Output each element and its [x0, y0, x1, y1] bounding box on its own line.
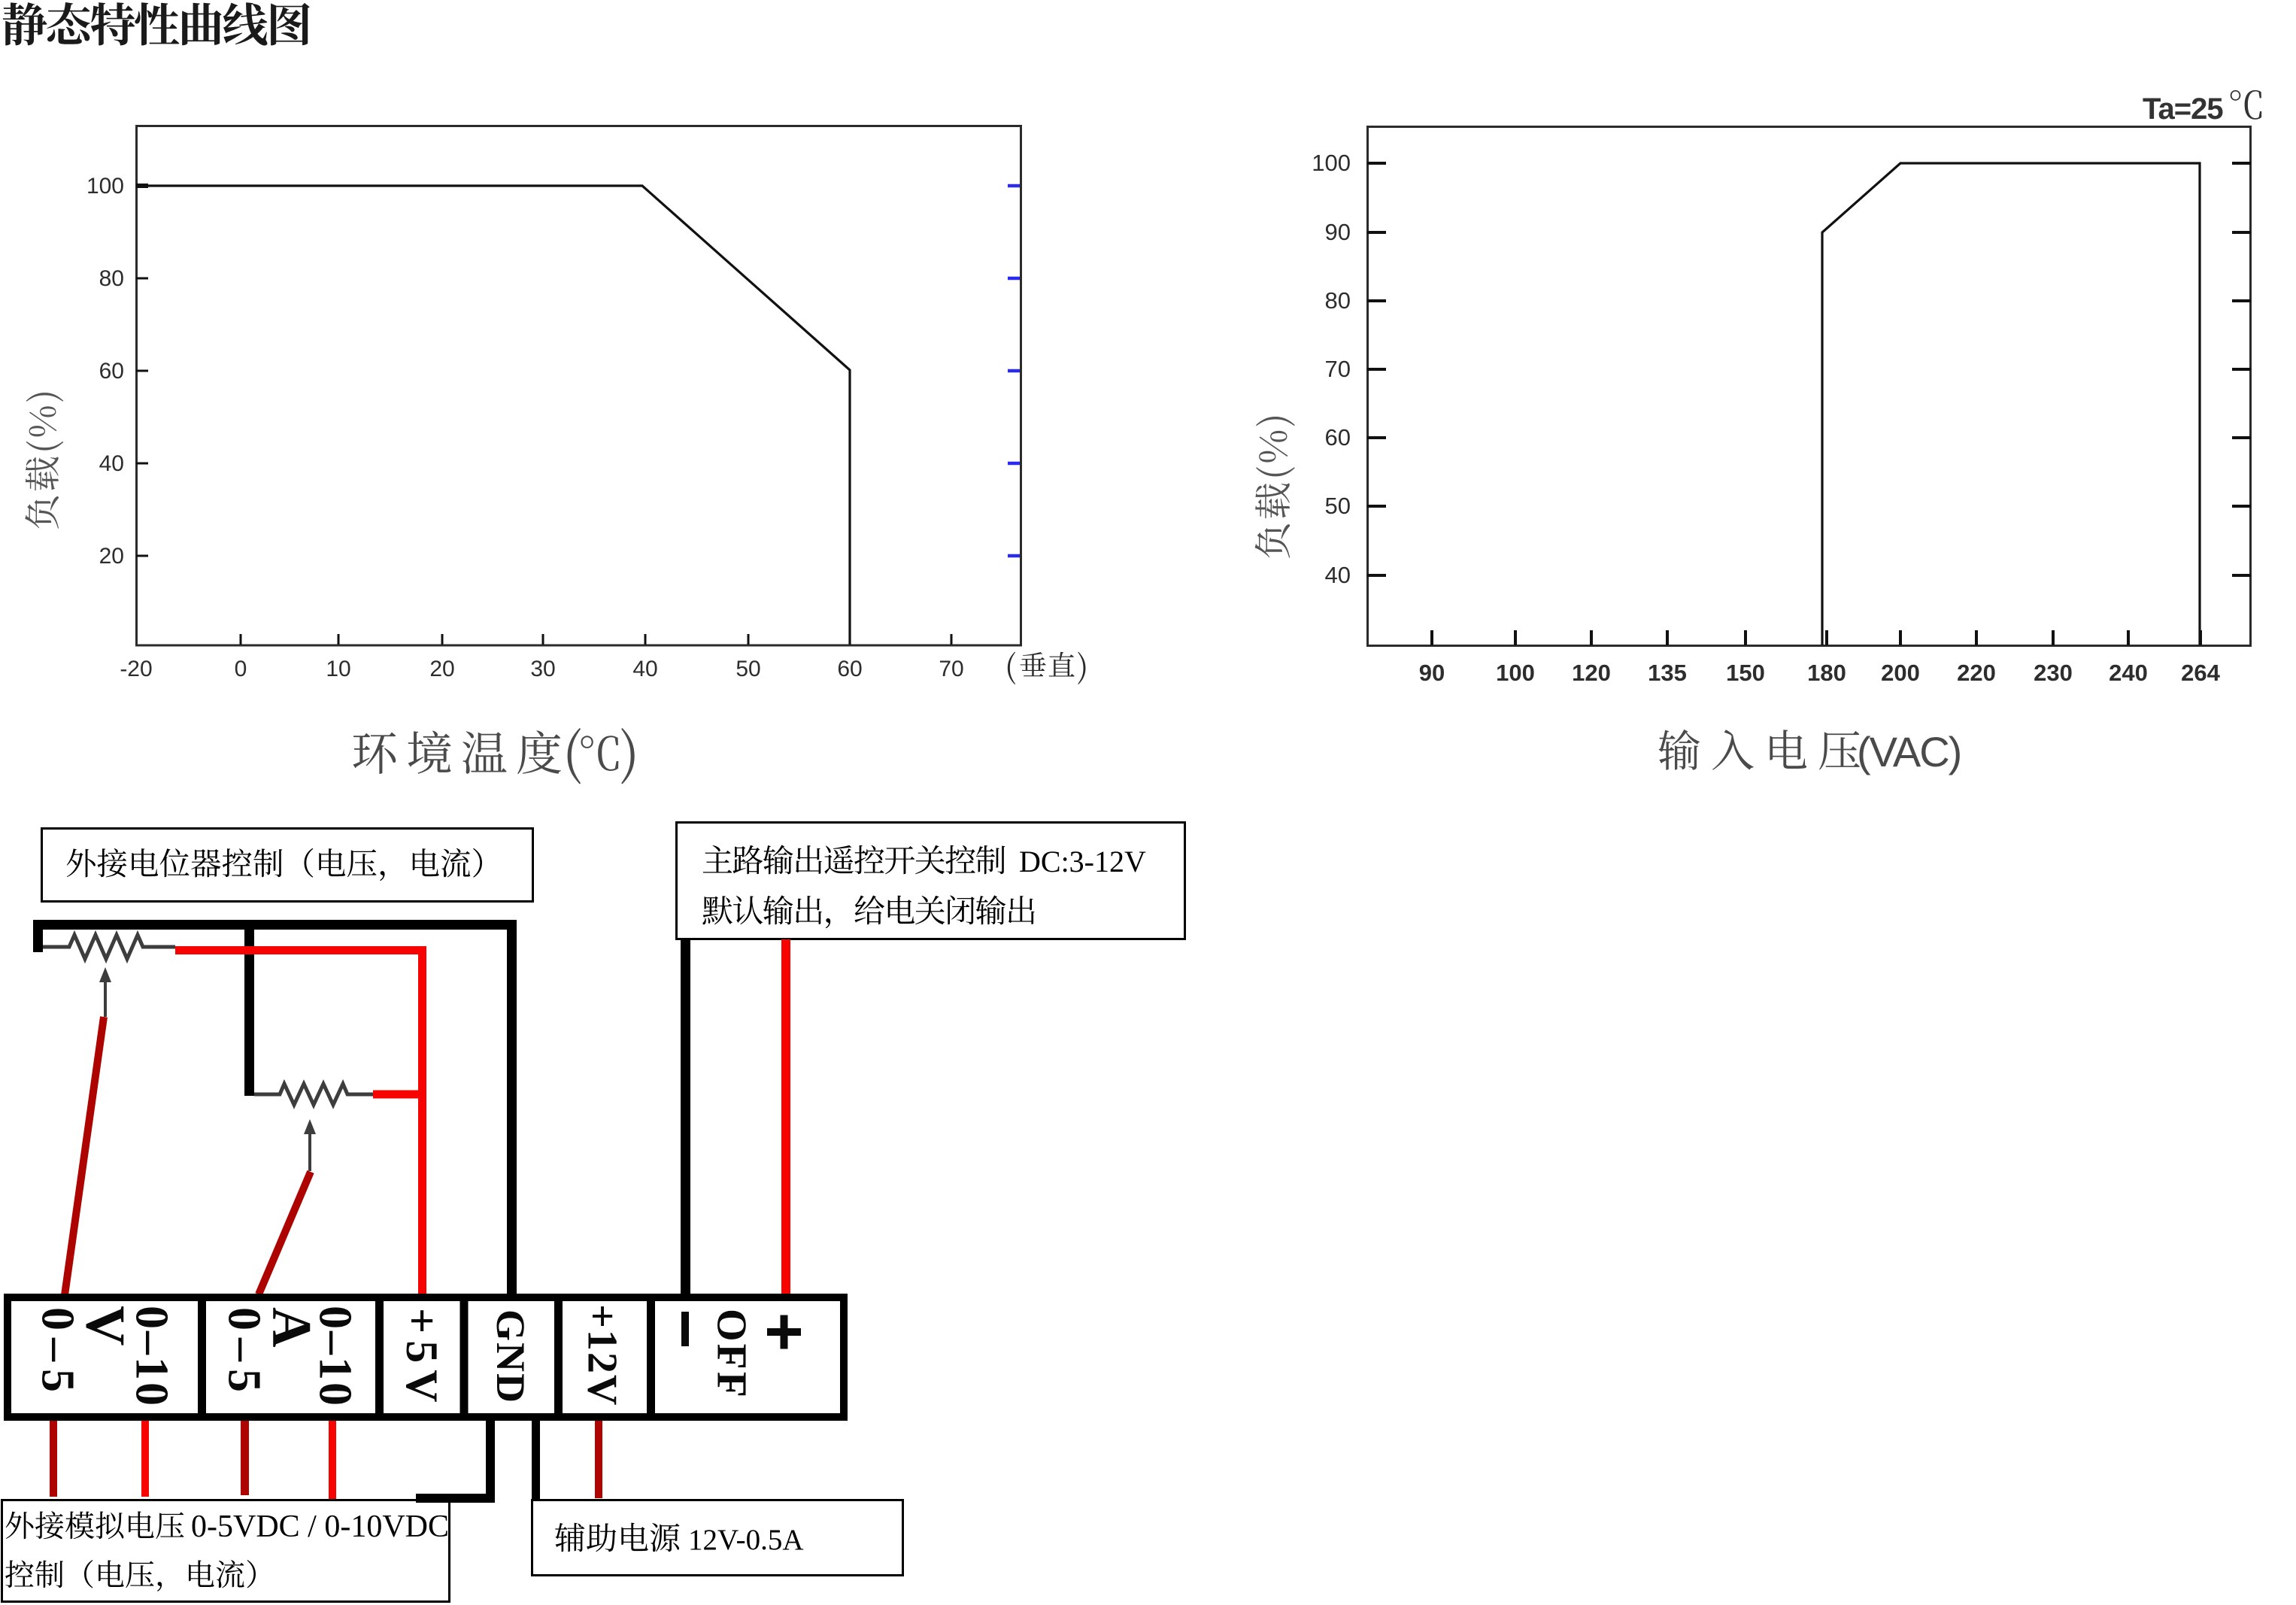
- svg-text:100: 100: [1496, 660, 1535, 686]
- svg-text:200: 200: [1881, 660, 1920, 686]
- svg-text:230: 230: [2034, 660, 2073, 686]
- svg-text:60: 60: [99, 359, 124, 384]
- svg-text:240: 240: [2109, 660, 2148, 686]
- svg-text:90: 90: [1419, 660, 1445, 686]
- svg-text:80: 80: [1325, 287, 1351, 314]
- svg-text:+5V: +5V: [397, 1308, 447, 1409]
- svg-text:0–10: 0–10: [126, 1306, 177, 1408]
- svg-text:180: 180: [1807, 660, 1846, 686]
- svg-text:20: 20: [429, 657, 454, 681]
- svg-text:0-5VDC / 0-10VDC: 0-5VDC / 0-10VDC: [191, 1509, 449, 1544]
- svg-text:(VAC): (VAC): [1857, 728, 1961, 775]
- svg-text:40: 40: [632, 657, 657, 681]
- svg-text:80: 80: [99, 266, 124, 291]
- svg-text:60: 60: [1325, 424, 1351, 451]
- svg-text:264: 264: [2181, 660, 2220, 686]
- svg-text:40: 40: [99, 451, 124, 476]
- svg-text:50: 50: [1325, 493, 1351, 519]
- svg-text:120: 120: [1572, 660, 1611, 686]
- svg-text:135: 135: [1648, 660, 1687, 686]
- svg-text:220: 220: [1957, 660, 1996, 686]
- svg-text:10: 10: [326, 657, 350, 681]
- svg-text:GND: GND: [488, 1309, 533, 1404]
- svg-text:Ta=25: Ta=25: [2143, 93, 2223, 126]
- svg-text:70: 70: [939, 657, 963, 681]
- svg-text:0: 0: [235, 657, 247, 681]
- svg-text:+12V: +12V: [579, 1304, 626, 1406]
- svg-text:60: 60: [837, 657, 862, 681]
- svg-text:30: 30: [530, 657, 555, 681]
- svg-text:100: 100: [86, 174, 124, 199]
- svg-text:150: 150: [1726, 660, 1765, 686]
- svg-text:90: 90: [1325, 219, 1351, 245]
- svg-text:100: 100: [1312, 150, 1351, 176]
- svg-text:40: 40: [1325, 562, 1351, 588]
- svg-text:DC:3-12V: DC:3-12V: [1019, 845, 1146, 878]
- svg-text:0–10: 0–10: [310, 1306, 361, 1408]
- svg-text:12V-0.5A: 12V-0.5A: [688, 1524, 804, 1556]
- svg-text:70: 70: [1325, 356, 1351, 382]
- svg-text:OFF: OFF: [708, 1309, 755, 1400]
- svg-text:20: 20: [99, 544, 124, 569]
- svg-text:50: 50: [736, 657, 760, 681]
- svg-text:-20: -20: [120, 657, 152, 681]
